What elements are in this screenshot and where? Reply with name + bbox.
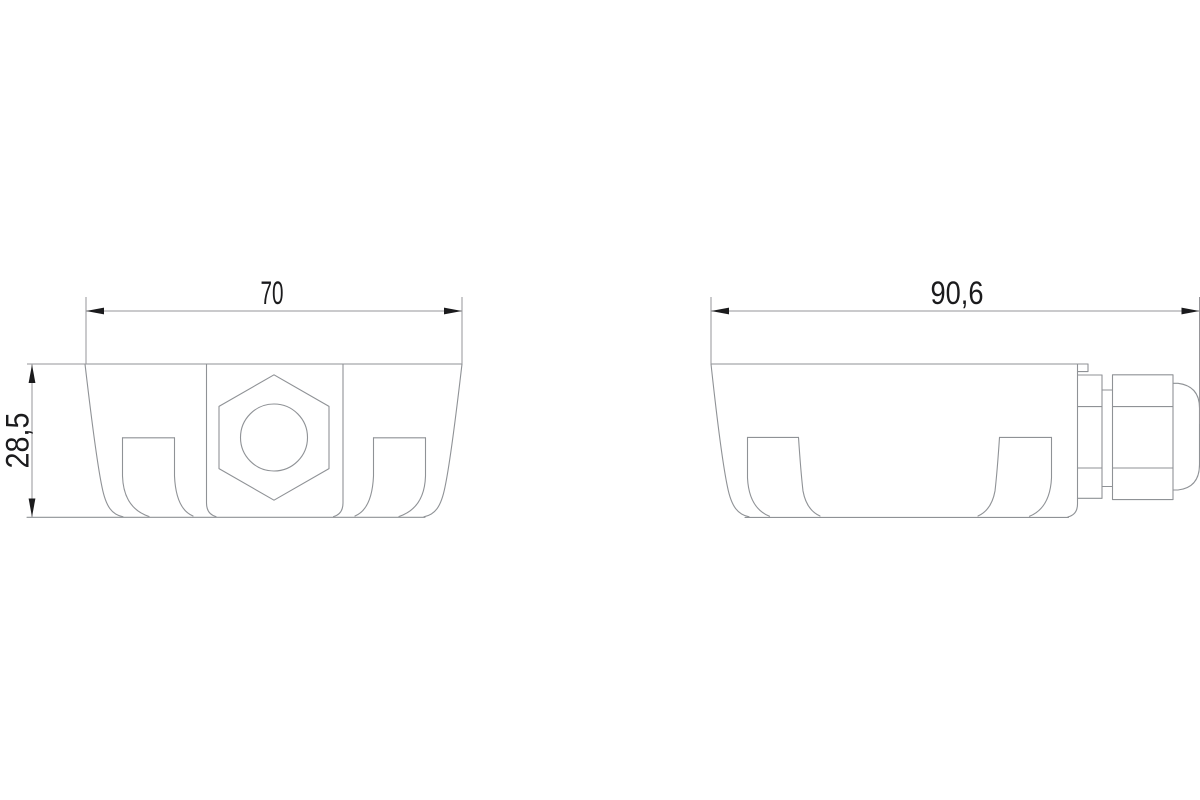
side-body-top-tab bbox=[1078, 364, 1089, 372]
center-section-right-line bbox=[334, 364, 344, 517]
gland-cap-outline bbox=[1113, 375, 1174, 500]
dimension-side-width: 90,6 bbox=[711, 275, 1200, 424]
cable-gland-cap bbox=[1113, 375, 1174, 500]
foot-left-side bbox=[123, 438, 150, 517]
arrowhead-right bbox=[444, 308, 462, 315]
mounting-foot-right bbox=[355, 438, 426, 517]
dimension-front-height: 28,5 bbox=[0, 364, 85, 517]
dimension-value: 90,6 bbox=[931, 275, 984, 311]
drawing-canvas: 70 90,6 28,5 bbox=[0, 0, 1200, 800]
cable-gland-dome bbox=[1173, 383, 1200, 490]
arrowhead-top bbox=[29, 365, 36, 384]
foot-right-side bbox=[1030, 437, 1052, 516]
mounting-foot-right bbox=[978, 437, 1052, 516]
front-body-left-side bbox=[85, 364, 123, 517]
center-section-left-line bbox=[207, 364, 217, 517]
dimension-front-width: 70 bbox=[86, 275, 462, 364]
foot-left-side bbox=[355, 438, 374, 516]
hex-nut bbox=[219, 375, 329, 500]
cable-gland-nut bbox=[1078, 375, 1103, 498]
foot-left-side bbox=[978, 437, 1000, 516]
arrowhead-right bbox=[1182, 308, 1200, 315]
cable-gland-neck bbox=[1102, 390, 1113, 487]
arrowhead-bottom bbox=[29, 499, 36, 518]
dimension-value: 70 bbox=[261, 275, 284, 311]
side-view bbox=[711, 364, 1200, 517]
dimension-value: 28,5 bbox=[0, 413, 36, 469]
foot-right-side bbox=[399, 438, 426, 517]
mounting-foot-left bbox=[123, 438, 194, 517]
arrowhead-left bbox=[86, 308, 104, 315]
foot-left-side bbox=[748, 437, 770, 516]
foot-right-side bbox=[175, 438, 194, 516]
front-body-right-side bbox=[424, 364, 462, 517]
mounting-foot-left bbox=[748, 437, 821, 516]
bore-circle bbox=[241, 404, 308, 471]
side-body-right-edge bbox=[1068, 364, 1078, 517]
side-body-left-side bbox=[711, 364, 749, 517]
technical-drawing: 70 90,6 28,5 bbox=[0, 0, 1200, 800]
arrowhead-left bbox=[711, 308, 729, 315]
foot-right-side bbox=[799, 437, 821, 516]
front-view bbox=[27, 364, 462, 517]
